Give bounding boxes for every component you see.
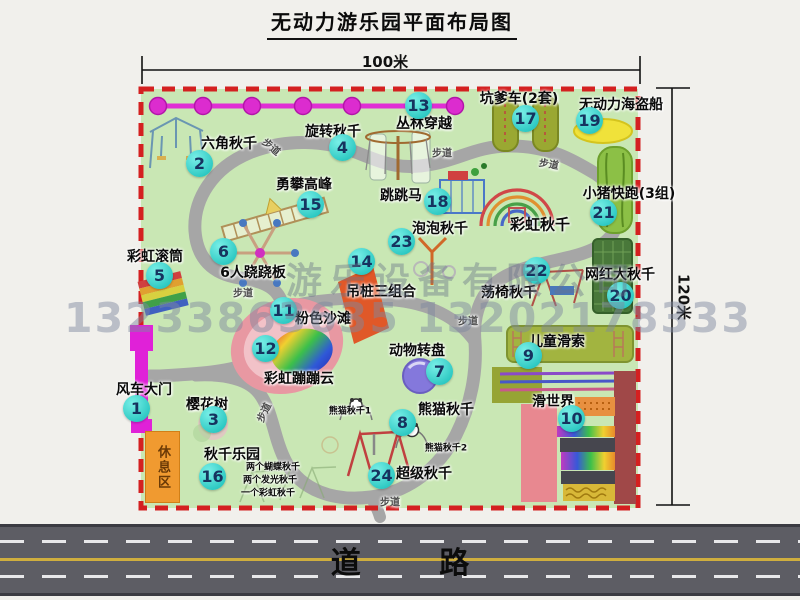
extra-label-0: 彩虹秋千: [510, 214, 570, 235]
attraction-label-8: 熊猫秋千: [418, 399, 474, 419]
extra-label-1: 熊猫秋千1: [329, 404, 371, 417]
attraction-badge-8: 8: [389, 409, 416, 436]
attraction-label-23: 泡泡秋千: [412, 218, 468, 238]
attraction-label-17: 坑爹车(2套): [480, 88, 559, 108]
attraction-badge-5: 5: [146, 262, 173, 289]
attraction-badge-6: 6: [210, 238, 237, 265]
attraction-badge-23: 23: [388, 228, 415, 255]
attraction-badge-9: 9: [515, 342, 542, 369]
extra-label-3: 两个蝴蝶秋千: [246, 460, 300, 473]
rest-area-label: 休息区: [153, 445, 172, 490]
attraction-badge-1: 1: [123, 395, 150, 422]
dimension-width-label: 100米: [362, 51, 408, 72]
attraction-label-7: 动物转盘: [389, 340, 445, 360]
road-band: 道 路: [0, 524, 800, 596]
attraction-label-18: 跳跳马: [380, 185, 422, 205]
attraction-badge-24: 24: [368, 462, 395, 489]
rest-area-box: 休息区: [145, 431, 180, 503]
attraction-badge-19: 19: [576, 107, 603, 134]
walkway-label: 步道: [432, 145, 452, 160]
attraction-badge-16: 16: [199, 463, 226, 490]
attraction-label-1: 风车大门: [116, 379, 172, 399]
attraction-badge-15: 15: [297, 191, 324, 218]
attraction-badge-3: 3: [200, 406, 227, 433]
attraction-label-2: 六角秋千: [201, 133, 257, 153]
attraction-label-6: 6人跷跷板: [220, 262, 286, 282]
attraction-badge-21: 21: [590, 199, 617, 226]
walkway-label: 步道: [538, 154, 560, 172]
attraction-badge-17: 17: [512, 105, 539, 132]
attraction-badge-10: 10: [558, 405, 585, 432]
attraction-label-24: 超级秋千: [396, 463, 452, 483]
road-label: 道 路: [297, 538, 503, 582]
extra-label-4: 两个发光秋千: [243, 473, 297, 486]
attraction-label-15: 勇攀高峰: [276, 174, 332, 194]
watermark-phone: 13233863635 13202178333: [64, 294, 752, 342]
attraction-badge-2: 2: [186, 150, 213, 177]
attraction-badge-7: 7: [426, 358, 453, 385]
page-title: 无动力游乐园平面布局图: [267, 6, 517, 40]
attraction-label-12: 彩虹蹦蹦云: [264, 368, 334, 388]
extra-label-2: 熊猫秋千2: [425, 441, 467, 454]
rotating-swing-icon: [366, 131, 430, 183]
park-plan-screenshot: 无动力游乐园平面布局图 100米 120米 休息区 风车大门1六角秋千2樱花树3…: [0, 0, 800, 600]
extra-label-5: 一个彩虹秋千: [241, 486, 295, 499]
attraction-badge-4: 4: [329, 134, 356, 161]
walkway-label: 步道: [380, 494, 400, 509]
attraction-badge-13: 13: [405, 92, 432, 119]
attraction-badge-18: 18: [424, 188, 451, 215]
